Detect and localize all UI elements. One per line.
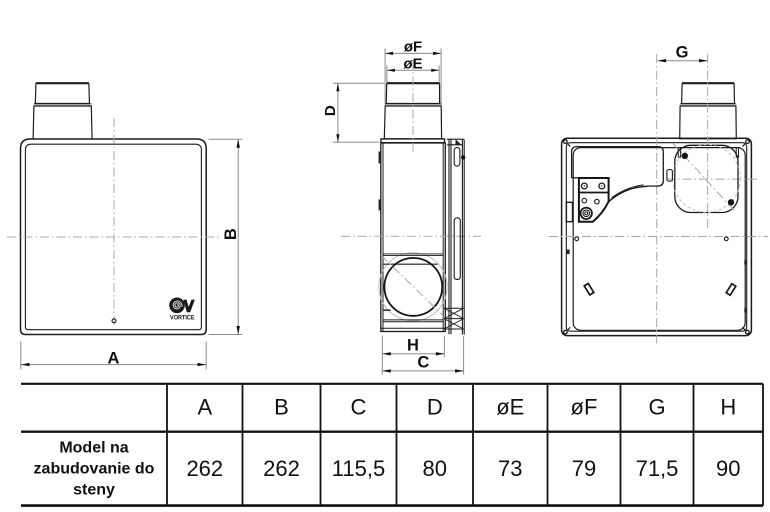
svg-text:A: A xyxy=(197,395,212,420)
svg-text:A: A xyxy=(108,349,120,367)
svg-text:steny: steny xyxy=(73,482,115,499)
svg-text:71,5: 71,5 xyxy=(636,456,679,481)
svg-text:C: C xyxy=(351,395,367,420)
svg-text:Model na: Model na xyxy=(59,440,128,457)
svg-text:G: G xyxy=(648,395,665,420)
svg-text:C: C xyxy=(417,354,429,372)
svg-text:øF: øF xyxy=(404,39,422,56)
svg-text:79: 79 xyxy=(572,456,596,481)
svg-text:øE: øE xyxy=(496,395,524,420)
svg-text:VORTICE: VORTICE xyxy=(170,315,195,322)
svg-text:D: D xyxy=(427,395,443,420)
svg-text:115,5: 115,5 xyxy=(332,456,385,481)
svg-text:H: H xyxy=(407,337,419,355)
svg-text:øE: øE xyxy=(403,55,422,72)
svg-text:zabudovanie do: zabudovanie do xyxy=(34,461,155,478)
svg-text:262: 262 xyxy=(263,456,300,481)
svg-text:B: B xyxy=(222,228,240,240)
svg-text:D: D xyxy=(322,105,339,116)
svg-text:H: H xyxy=(720,395,736,420)
svg-text:80: 80 xyxy=(423,456,447,481)
svg-text:øF: øF xyxy=(571,395,598,420)
svg-text:73: 73 xyxy=(498,456,522,481)
svg-text:262: 262 xyxy=(186,456,223,481)
svg-text:90: 90 xyxy=(716,456,740,481)
svg-text:B: B xyxy=(274,395,289,420)
svg-text:G: G xyxy=(676,44,689,62)
